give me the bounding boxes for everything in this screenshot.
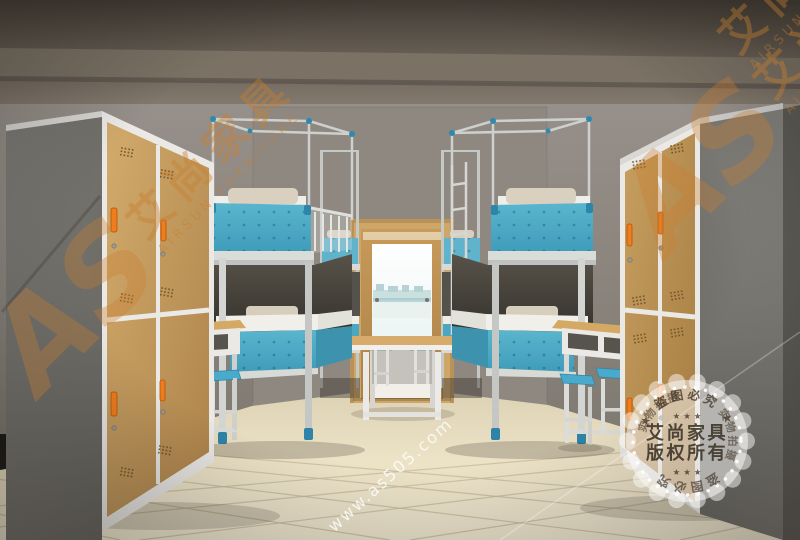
stamp-stars-top: ★ ★ ★ — [673, 412, 702, 422]
rendered-room-photo: AS 艾尚家具 AIRSUN FURNITURE AS 艾尚家具 AIRSUN … — [0, 0, 800, 540]
stamp-title-line2: 版权所有 — [646, 442, 728, 464]
stamp-title-line1: 艾尚家具 — [646, 422, 728, 444]
scene-root: AS 艾尚家具 AIRSUN FURNITURE AS 艾尚家具 AIRSUN … — [0, 0, 800, 540]
stamp-stars-bottom: ★ ★ ★ — [673, 468, 702, 478]
